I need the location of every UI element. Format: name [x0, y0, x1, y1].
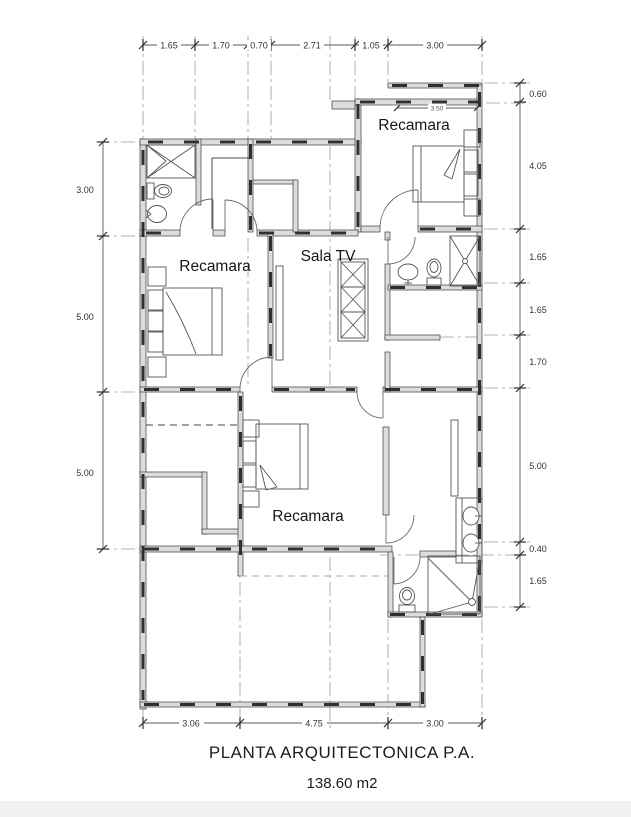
dim-top-0: 1.65: [160, 41, 178, 51]
pillow: [243, 441, 256, 463]
toilet-3-tank: [399, 605, 415, 612]
nightstand: [148, 267, 166, 286]
pillow: [148, 311, 163, 331]
dimension-chain-left: 3.00 5.00 5.00: [72, 138, 109, 553]
dim-right-3: 1.65: [529, 305, 547, 315]
dim-right-0: 0.60: [529, 89, 547, 99]
dim-right-6: 0.40: [529, 544, 547, 554]
wall-step: [332, 101, 355, 109]
wall-bath1-right: [196, 139, 201, 205]
dim-bottom-2: 3.00: [426, 719, 444, 729]
wardrobe-salatv: [276, 266, 283, 360]
toilet-2-tank: [427, 278, 441, 285]
nightstand: [243, 420, 259, 437]
dim-right-2: 1.65: [529, 252, 547, 262]
dim-top-3: 2.71: [303, 41, 321, 51]
salatv-furniture: [276, 259, 458, 496]
door-arc-bedroom-top: [380, 190, 418, 228]
dim-right-1: 4.05: [529, 161, 547, 171]
bathroom-bottom-right: [399, 498, 482, 614]
dim-right-7: 1.65: [529, 576, 547, 586]
pillow: [148, 290, 163, 310]
pillow: [464, 150, 478, 172]
room-label-bedroom-top: Recamara: [378, 117, 450, 134]
door-arc-vanity: [386, 515, 414, 543]
bottom-strip: [0, 801, 631, 817]
pillow: [243, 465, 256, 487]
walls: [140, 83, 482, 709]
dim-left-2: 5.00: [76, 468, 94, 478]
door-arc-bedroom-left: [240, 357, 272, 389]
dim-left-1: 5.00: [76, 312, 94, 322]
dim-right-4: 1.70: [529, 357, 547, 367]
plan-area: 138.60 m2: [307, 775, 378, 792]
bed-top-right: [413, 130, 480, 216]
dim-right-5: 5.00: [529, 461, 547, 471]
dim-left-0: 3.00: [76, 185, 94, 195]
bed-bottom: [243, 420, 308, 507]
pillow: [148, 332, 163, 352]
dim-bottom-0: 3.06: [182, 719, 200, 729]
dimension-chain-bottom: 3.06 4.75 3.00: [139, 717, 486, 729]
dimension-chain-right: 0.60 4.05 1.65 1.65 1.70 5.00 0.40 1.65: [514, 79, 551, 611]
plan-title: PLANTA ARQUITECTONICA P.A.: [209, 743, 475, 762]
room-label-bedroom-left: Recamara: [179, 258, 251, 275]
dim-interior: 3.50: [431, 106, 444, 113]
nightstand: [243, 491, 259, 507]
dim-top-4: 1.05: [362, 41, 380, 51]
bed-left: [148, 267, 222, 377]
room-label-bedroom-bottom: Recamara: [272, 508, 344, 525]
room-label-sala-tv: Sala TV: [301, 248, 357, 265]
dim-top-5: 3.00: [426, 41, 444, 51]
sink-2: [398, 264, 418, 280]
dim-top-2: 0.70: [250, 41, 268, 51]
door-arc-bedroom-bottom: [357, 392, 383, 418]
dimension-chain-top: 1.65 1.70 0.70 2.71 1.05 3.00: [139, 39, 486, 51]
nightstand: [148, 357, 166, 377]
pillow: [464, 174, 478, 196]
floor-plan-svg: 1.65 1.70 0.70 2.71 1.05 3.00 3.06 4.75 …: [0, 0, 631, 817]
wardrobe-bedroom-bottom: [451, 420, 458, 496]
toilet-1-tank: [147, 183, 154, 199]
dim-bottom-1: 4.75: [305, 719, 323, 729]
bathroom-middle-right: [398, 236, 480, 286]
floor-plan-page: 1.65 1.70 0.70 2.71 1.05 3.00 3.06 4.75 …: [0, 0, 631, 817]
door-arc-bath3: [394, 557, 420, 584]
dim-top-1: 1.70: [212, 41, 230, 51]
door-arc-bath2: [388, 237, 415, 264]
